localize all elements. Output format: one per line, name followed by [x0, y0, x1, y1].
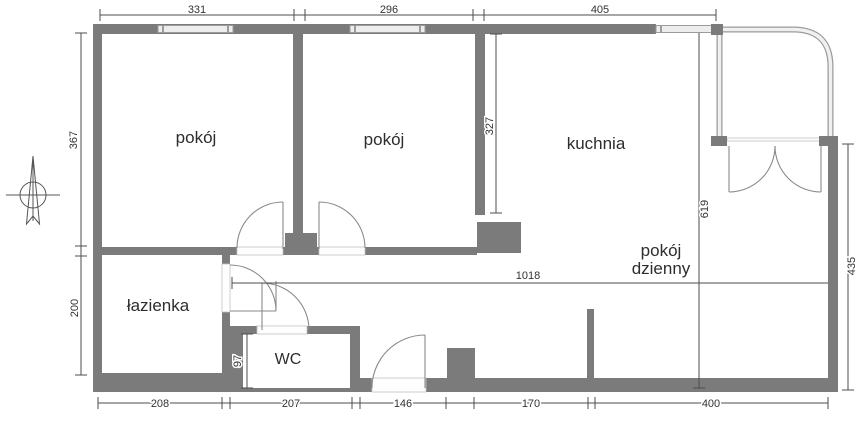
balcony-glazing-inner — [722, 30, 831, 137]
label-bathroom: łazienka — [127, 296, 190, 315]
wall-hall-top-c — [365, 247, 477, 255]
north-arrow-icon — [6, 156, 60, 224]
wc-floor-overlay — [243, 378, 350, 388]
balcony-sill — [727, 138, 820, 141]
dim-left-2: 200 — [69, 299, 81, 317]
door-balcony-left-icon — [729, 146, 775, 192]
label-wc: WC — [275, 351, 302, 368]
wall-hall-top-b — [283, 247, 320, 255]
door-wc-threshold — [257, 326, 307, 334]
dim-bottom-1: 208 — [151, 398, 169, 410]
label-room1: pokój — [176, 128, 217, 147]
dim-kitchen: 327 — [484, 117, 496, 135]
wall-kitchen-block — [477, 222, 521, 253]
dim-living: 619 — [699, 200, 711, 218]
wall-wc-right — [350, 326, 360, 392]
dim-bottom-5: 400 — [702, 398, 720, 410]
wall-bath-bottom-pad — [95, 373, 222, 379]
wall-left — [93, 24, 102, 392]
doors — [222, 146, 821, 392]
dim-top-2: 296 — [380, 4, 398, 16]
door-room1-icon — [237, 202, 283, 249]
dim-top-1: 331 — [188, 4, 206, 16]
label-living-line2: dzienny — [632, 259, 691, 278]
wall-bath-right-lower — [222, 312, 230, 392]
door-room2-threshold — [319, 247, 365, 255]
wall-entry-block — [447, 348, 475, 392]
walls — [93, 24, 838, 392]
wall-room1-room2 — [293, 34, 303, 255]
door-wc-icon — [262, 283, 309, 330]
window-room2-icon — [350, 26, 425, 33]
wall-bath-right-upper — [222, 247, 230, 264]
floor-plan-drawing: 331 296 405 367 200 208 207 146 170 400 … — [0, 0, 860, 422]
dim-bottom-2: 207 — [282, 398, 300, 410]
floor-plan: 331 296 405 367 200 208 207 146 170 400 … — [0, 0, 860, 422]
dim-wc: 97 — [232, 355, 244, 367]
wall-living-stub — [587, 309, 594, 392]
window-kitchen-icon — [656, 26, 713, 33]
balcony-post-top — [711, 24, 723, 35]
dim-right-1: 435 — [846, 257, 858, 275]
dim-line-left — [75, 33, 87, 375]
door-room2-icon — [319, 202, 365, 249]
dim-left-1: 367 — [68, 131, 80, 149]
balcony-post-bottom-right — [819, 136, 833, 146]
door-balcony-right-icon — [775, 146, 821, 192]
door-bathroom-icon — [230, 265, 276, 311]
door-entry-threshold — [372, 378, 426, 392]
label-living-line1: pokój — [641, 241, 682, 260]
dim-bottom-4: 170 — [522, 398, 540, 410]
balcony-post-bottom-left — [711, 136, 727, 146]
wall-wc-top-left — [243, 326, 257, 334]
balcony-glazing-outer — [722, 30, 831, 137]
balcony — [711, 24, 833, 146]
wall-right — [828, 136, 838, 392]
dim-top-3: 405 — [591, 4, 609, 16]
label-room2: pokój — [364, 130, 405, 149]
label-kitchen: kuchnia — [567, 134, 626, 153]
dim-bottom-3: 146 — [394, 398, 412, 410]
dim-hall: 1018 — [516, 270, 540, 282]
wall-hall-top-a — [93, 247, 237, 255]
door-bathroom-threshold — [222, 264, 230, 312]
door-room1-threshold — [237, 247, 283, 255]
window-room1-icon — [158, 26, 233, 33]
